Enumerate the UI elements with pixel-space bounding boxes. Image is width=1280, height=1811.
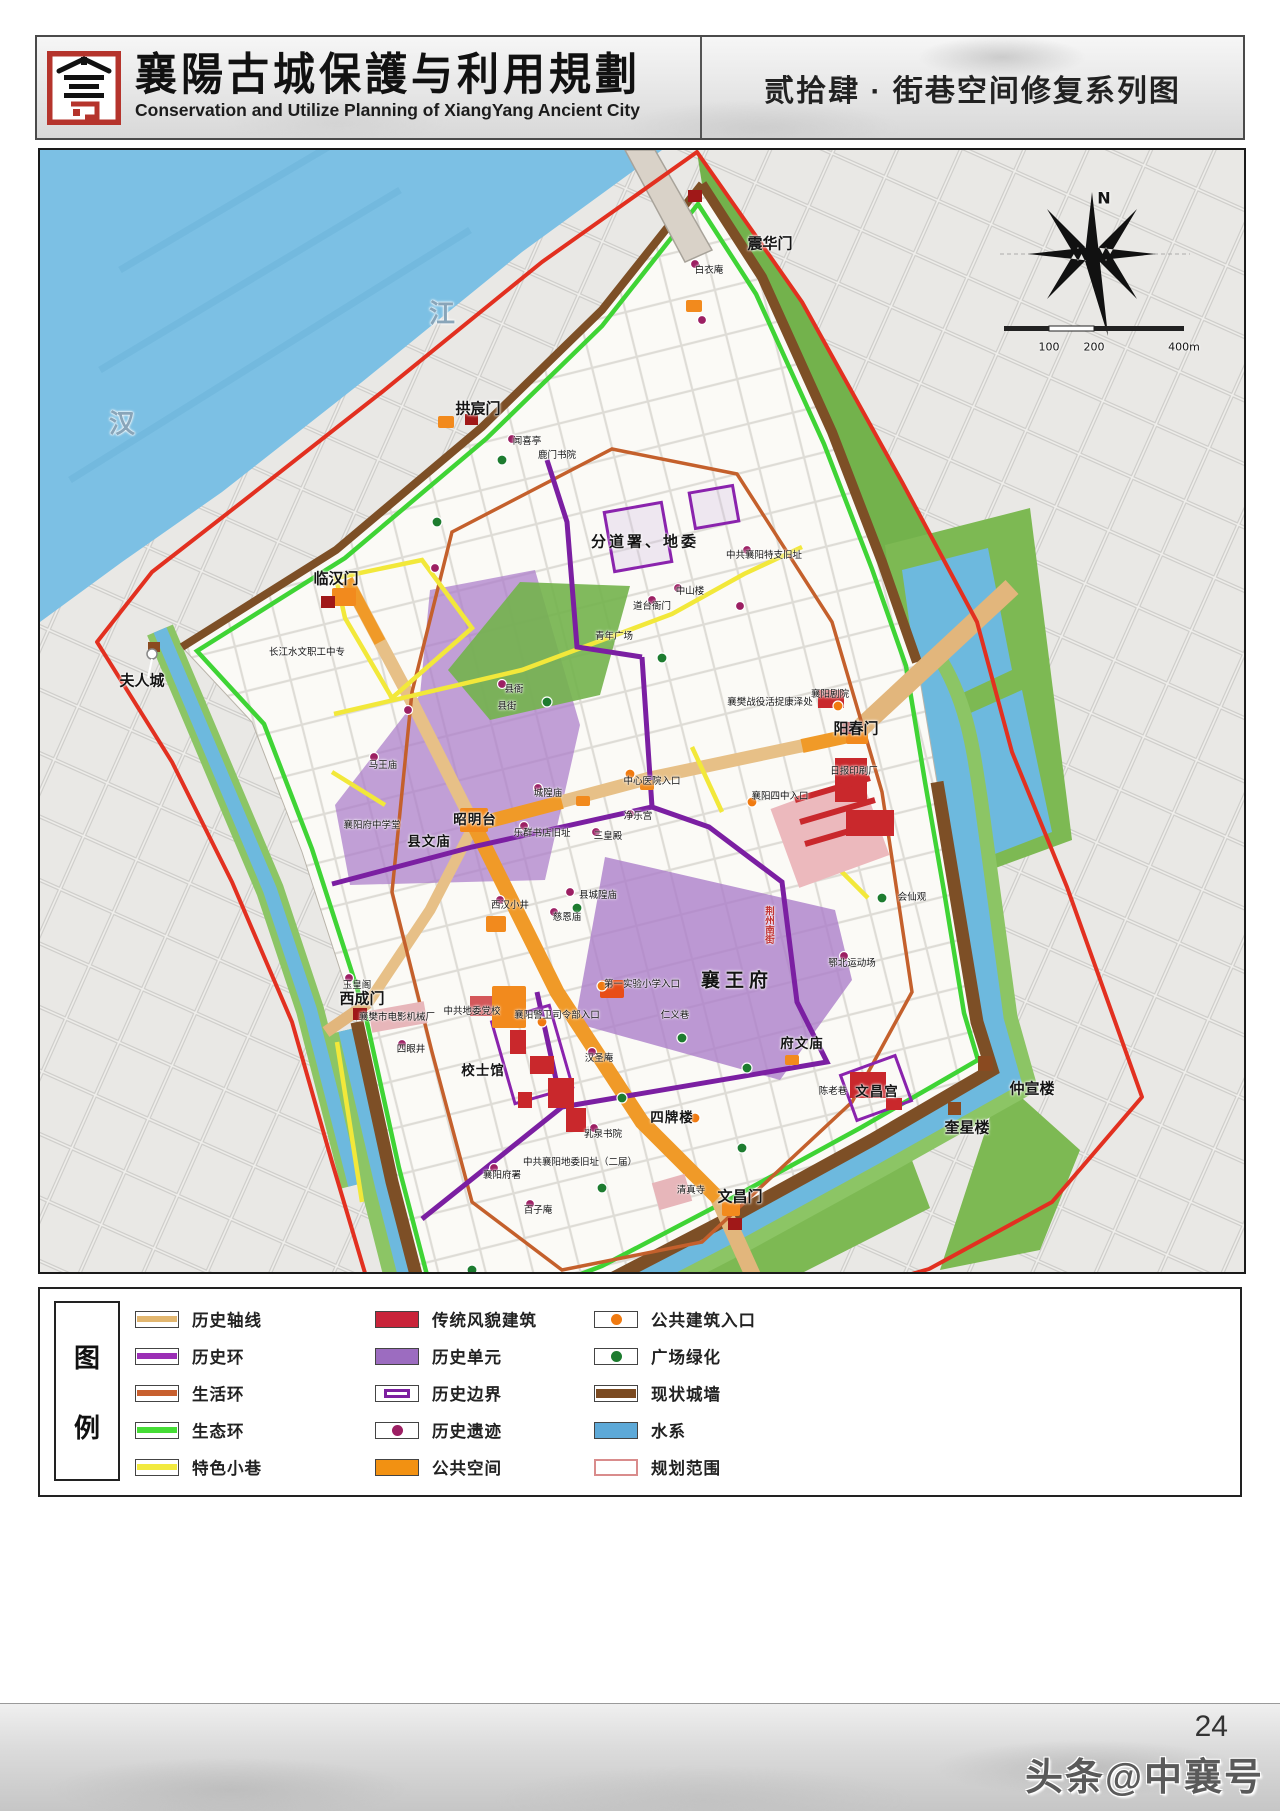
legend-item: 传统风貌建筑 [375,1305,537,1333]
sheet-header: 襄陽古城保護与利用規劃 Conservation and Utilize Pla… [35,35,1245,140]
legend-label: 历史遗迹 [432,1418,502,1442]
legend-swatch-band [135,1348,179,1365]
legend-label: 历史边界 [432,1381,502,1405]
legend-label: 公共空间 [432,1455,502,1479]
map-frame: 震华门拱宸门临汉门夫人城西成门阳春门文昌门仲宣楼奎星楼狮子楼分道署、地委襄王府昭… [38,148,1246,1274]
legend-label: 公共建筑入口 [651,1307,756,1331]
legend-swatch-band [135,1385,179,1402]
legend-item: 现状城墙 [594,1379,721,1407]
legend-label: 历史单元 [432,1344,502,1368]
legend-item: 历史轴线 [135,1305,262,1333]
legend-swatch-wall [594,1385,638,1402]
page-number: 24 [1195,1710,1228,1744]
legend-swatch-band [135,1459,179,1476]
legend-item: 历史边界 [375,1379,502,1407]
legend-label: 历史环 [192,1344,245,1368]
legend-item: 生活环 [135,1379,245,1407]
legend-swatch-border [375,1385,419,1402]
legend-label: 生态环 [192,1418,245,1442]
legend-item: 公共建筑入口 [594,1305,756,1333]
legend-label: 规划范围 [651,1455,721,1479]
legend-item: 特色小巷 [135,1453,262,1481]
footer-band: 24 头条@中襄号 [0,1703,1280,1811]
legend-swatch-fill [594,1422,638,1439]
legend-title-box: 图 例 [54,1301,120,1481]
legend-item: 广场绿化 [594,1342,721,1370]
legend-label: 传统风貌建筑 [432,1307,537,1331]
legend-item: 水系 [594,1416,686,1444]
main-title-en: Conservation and Utilize Planning of Xia… [135,100,641,121]
header-title-block: 襄陽古城保護与利用規劃 Conservation and Utilize Pla… [37,37,702,138]
legend-swatch-outline [594,1459,638,1476]
xiangyang-city-emblem-icon [47,51,121,125]
sheet-title: 贰拾肆 · 街巷空间修复系列图 [764,66,1181,110]
legend-item: 历史遗迹 [375,1416,502,1444]
legend-label: 广场绿化 [651,1344,721,1368]
legend-swatch-fill [375,1311,419,1328]
legend-title-char-2: 例 [74,1408,100,1445]
legend: 图 例 历史轴线历史环生活环生态环特色小巷传统风貌建筑历史单元历史边界历史遗迹公… [38,1287,1242,1497]
legend-label: 生活环 [192,1381,245,1405]
legend-item: 生态环 [135,1416,245,1444]
legend-title-char-1: 图 [74,1338,100,1375]
legend-swatch-dot [594,1348,638,1365]
legend-swatch-band [135,1311,179,1328]
scale-bar [1004,326,1184,331]
main-title-cn: 襄陽古城保護与利用規劃 [135,53,641,97]
legend-label: 水系 [651,1418,686,1442]
legend-swatch-fill [375,1348,419,1365]
legend-swatch-dot [594,1311,638,1328]
furencheng-marker [147,649,157,659]
legend-item: 公共空间 [375,1453,502,1481]
watermark: 头条@中襄号 [1025,1746,1264,1801]
legend-item: 历史单元 [375,1342,502,1370]
legend-item: 历史环 [135,1342,245,1370]
legend-item: 规划范围 [594,1453,721,1481]
legend-label: 特色小巷 [192,1455,262,1479]
legend-label: 现状城墙 [651,1381,721,1405]
legend-swatch-fill [375,1459,419,1476]
legend-label: 历史轴线 [192,1307,262,1331]
legend-swatch-dot [375,1422,419,1439]
legend-swatch-band [135,1422,179,1439]
city-map-graphic [40,150,1244,1272]
